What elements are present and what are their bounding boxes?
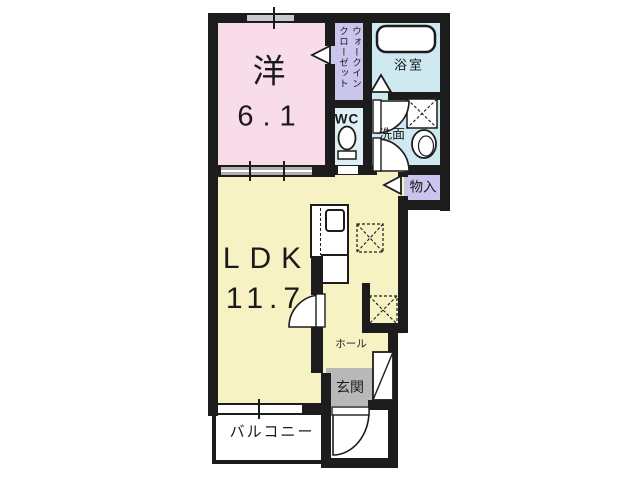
entrance-label: 玄関 [336, 380, 364, 394]
balcony-label: バルコニー [230, 425, 315, 440]
sink-icon [412, 130, 436, 158]
bath-door-triangle-icon [371, 75, 391, 92]
wc-label: WC [335, 112, 360, 126]
western-room-label: 洋 [253, 55, 286, 88]
walk-in-closet-label-line2: クローゼット [336, 26, 349, 104]
bathroom-label: 浴室 [394, 59, 424, 72]
fixtures-layer [0, 0, 640, 480]
walk-in-closet-label-line1: ウォークイン [349, 26, 362, 104]
washroom-door-arc [373, 138, 409, 171]
kitchen-counter [311, 205, 348, 283]
storage-door-triangle-icon [384, 176, 401, 194]
washing-machine-space [407, 99, 437, 128]
storage-label: 物入 [410, 180, 437, 194]
hall-label: ホール [335, 339, 367, 350]
front-door-arc [332, 407, 369, 455]
toilet-icon [338, 127, 356, 160]
bathtub-icon [377, 26, 435, 52]
floor-plan: 洋 6.1 LDK 11.7 浴室 WC 洗面 物入 ホール 玄関 バルコニー … [0, 0, 640, 480]
walk-in-closet-label: ウォークイン クローゼット [336, 26, 362, 104]
closet-door-triangle-icon [312, 46, 330, 64]
western-room-size: 6.1 [237, 103, 304, 132]
ldk-label: LDK [223, 244, 311, 274]
kitchen-lower-cabinet [322, 255, 348, 283]
washroom-label: 洗面 [379, 128, 405, 141]
hall-storage-space [369, 296, 397, 324]
ldk-size: 11.7 [226, 284, 306, 314]
refrigerator-space [357, 224, 383, 252]
shoe-cabinet [373, 352, 393, 400]
stove-icon [326, 210, 344, 231]
